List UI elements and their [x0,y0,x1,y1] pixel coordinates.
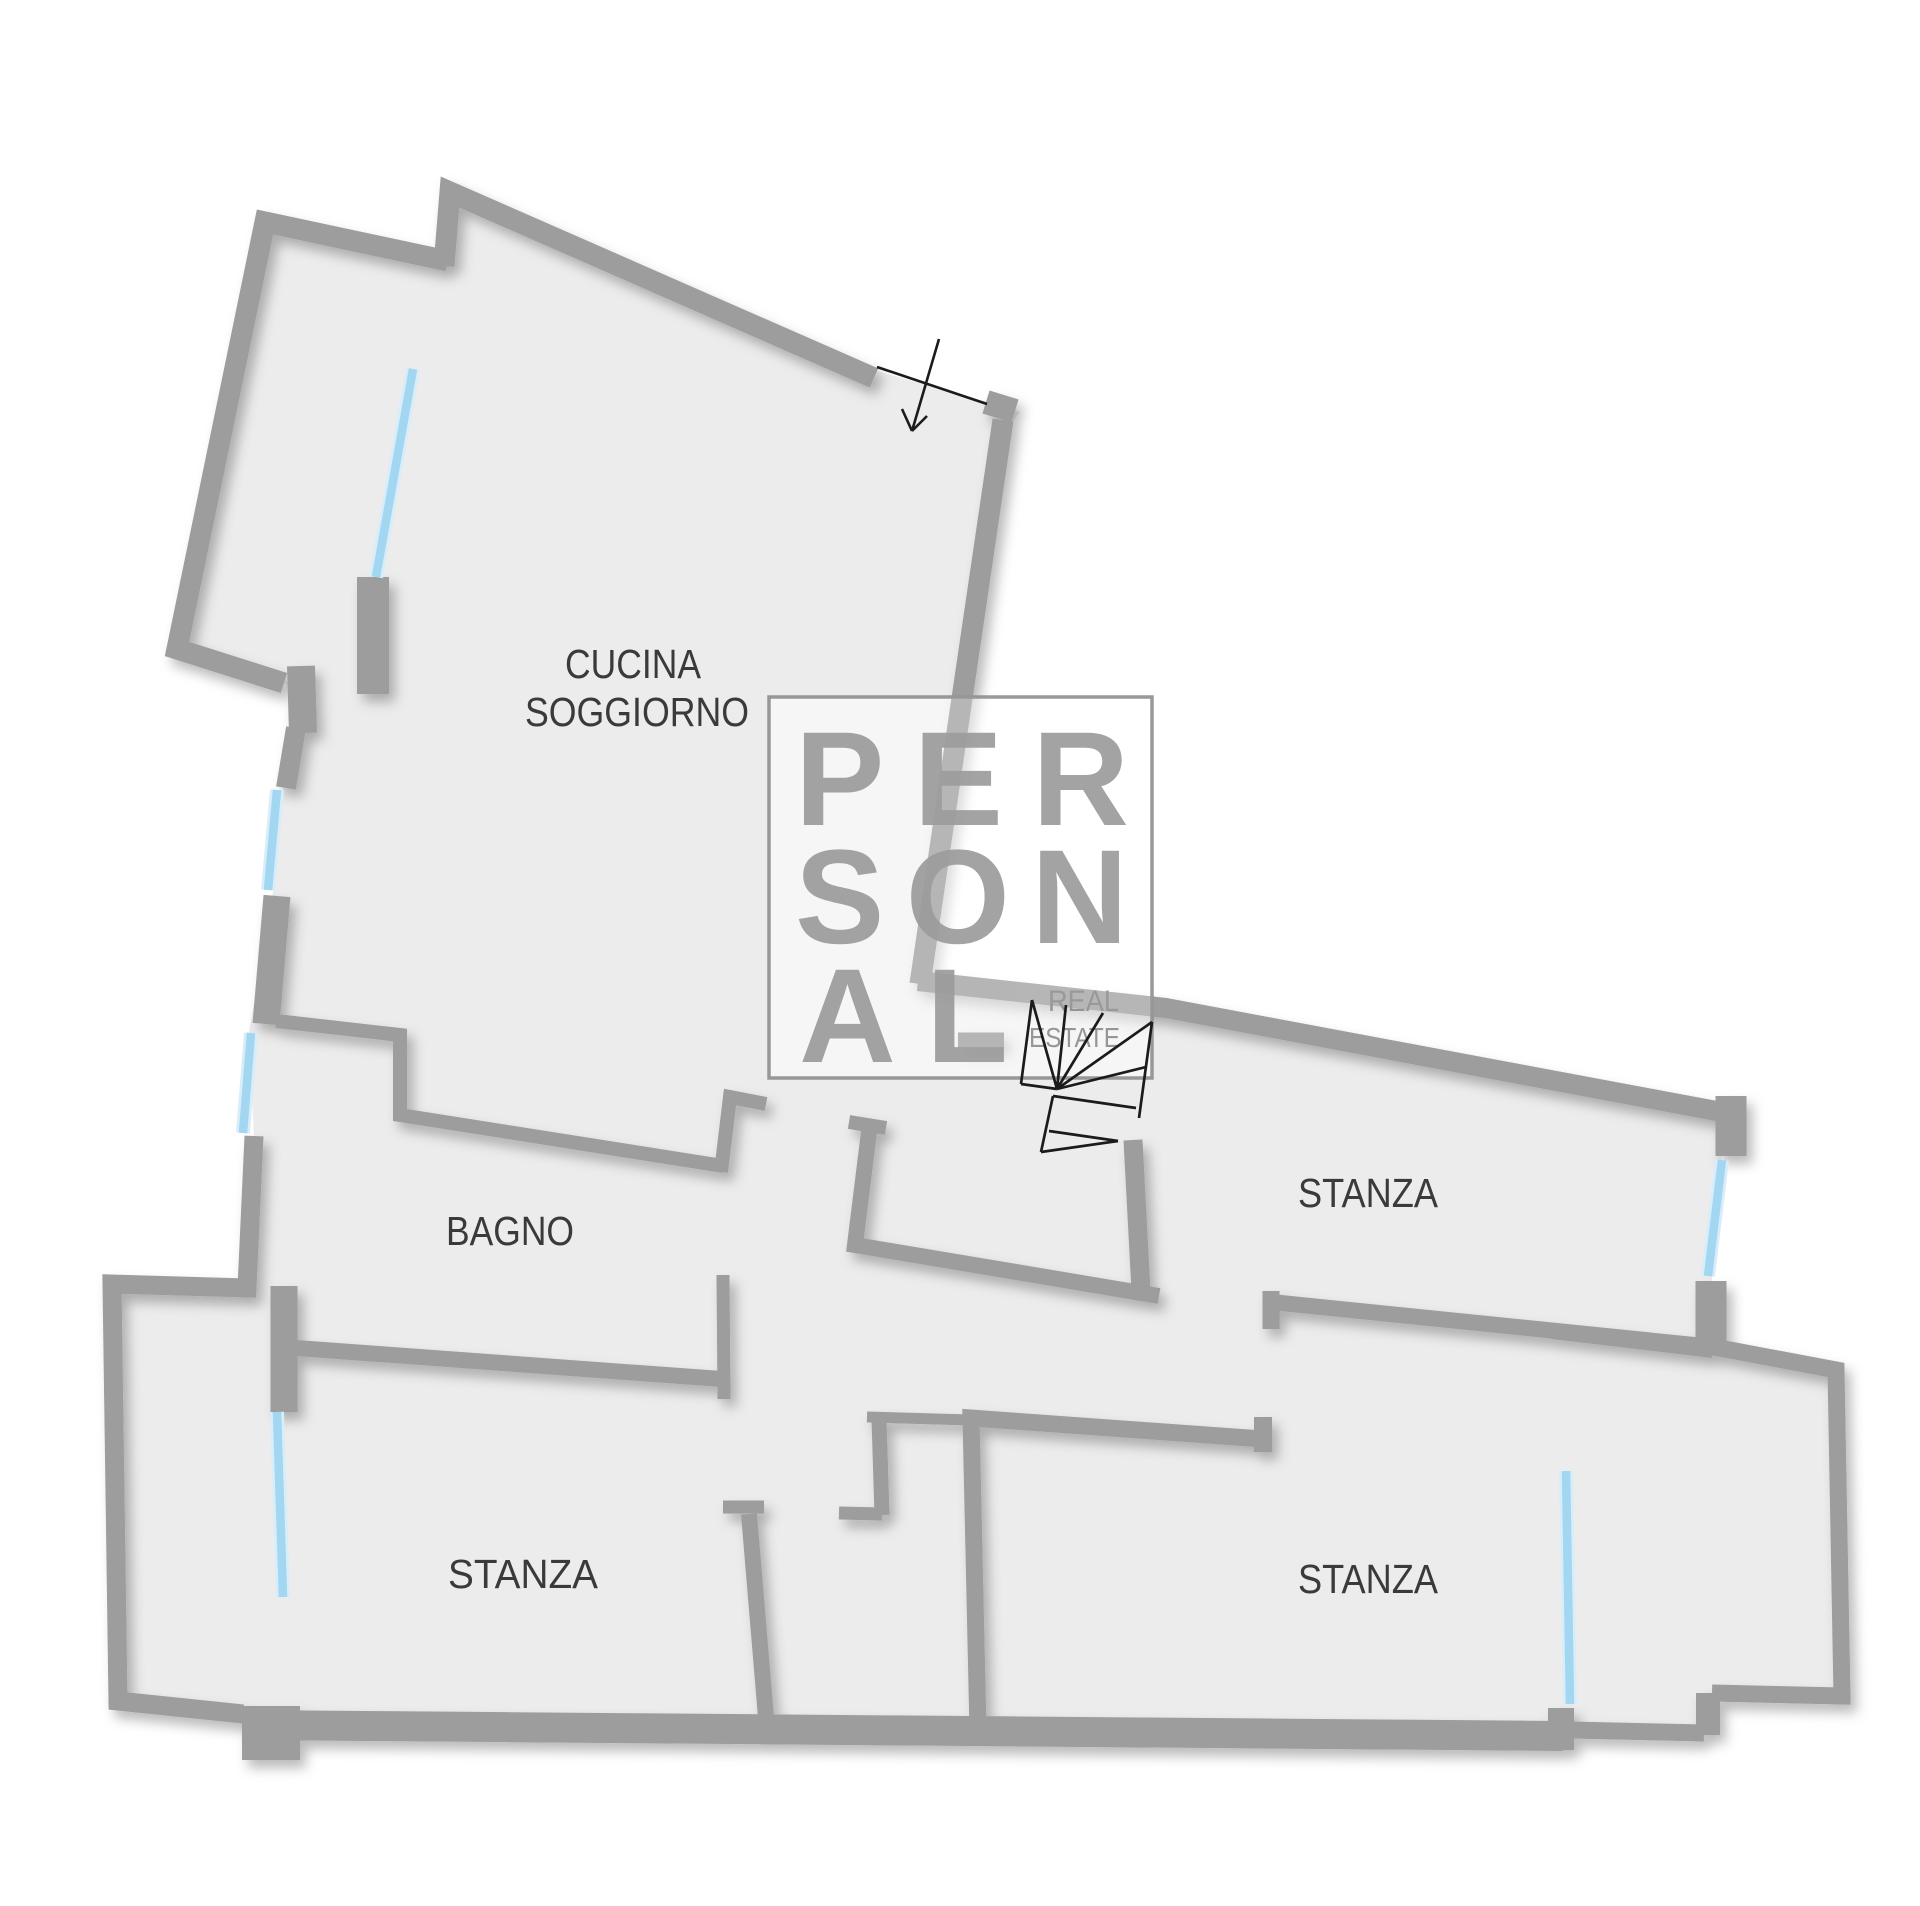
svg-text:SOGGIORNO: SOGGIORNO [525,689,749,735]
svg-text:STANZA: STANZA [448,1551,599,1597]
svg-text:CUCINA: CUCINA [565,641,702,687]
svg-text:STANZA: STANZA [1298,1170,1439,1216]
svg-text:BAGNO: BAGNO [446,1208,574,1254]
svg-text:STANZA: STANZA [1298,1556,1439,1602]
